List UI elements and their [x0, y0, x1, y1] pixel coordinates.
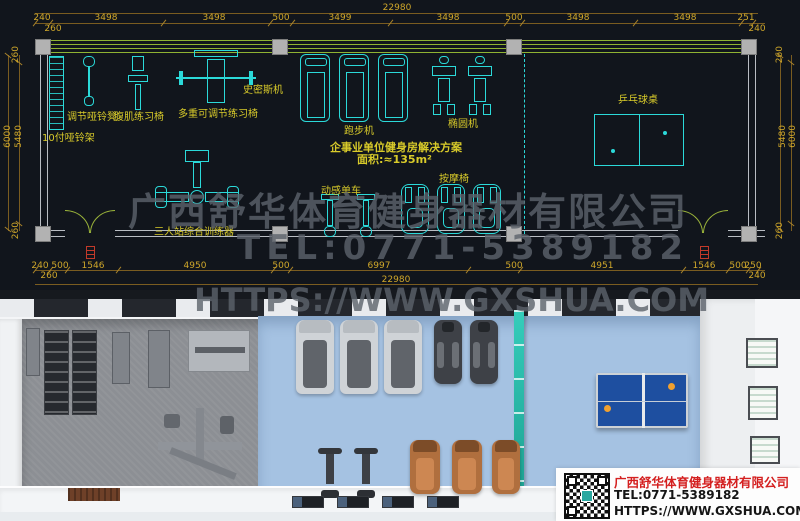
dim-bot-seg-0: 240 [31, 262, 48, 271]
solution-area: 面积:≈135m² [357, 151, 432, 167]
massage-chair-3d [492, 440, 520, 494]
treadmill-plan-icon [378, 54, 408, 122]
page: 22980 240 3498 3498 500 3499 3498 500 34… [0, 0, 800, 521]
wall-poster [748, 386, 778, 420]
label-dumbbell-rack: 10付哑铃架 [42, 133, 95, 144]
label-dumbbell-bench: 调节哑铃凳 [67, 112, 117, 123]
watermark-url: HTTPS://WWW.GXSHUA.COM [194, 281, 709, 319]
dumbbell-rack-3d [44, 330, 69, 415]
dim-top-seg-4: 3499 [329, 14, 352, 23]
dumbbell-rack-3d [72, 330, 97, 415]
treadmill-plan-icon [300, 54, 330, 122]
exit-symbol-icon [700, 246, 709, 259]
label-ab-bench: 腹肌练习椅 [114, 112, 164, 123]
dim-right-top: 260 [776, 46, 785, 63]
wall-poster [750, 436, 780, 464]
dim-top-seg-6: 500 [505, 14, 522, 23]
company-url: HTTPS://WWW.GXSHUA.COM [614, 504, 800, 518]
dim-top-seg-9: 251 [737, 14, 754, 23]
elliptical-3d [434, 320, 462, 384]
right-wall [748, 50, 756, 232]
dim-top-seg-7: 3498 [567, 14, 590, 23]
massage-chair-3d [410, 440, 440, 494]
render-view: 广西舒华体育健身器材有限公司 TEL:0771-5389182 HTTPS://… [0, 290, 800, 521]
ab-bench-3d [148, 330, 170, 388]
dim-bot-seg-2: 1546 [82, 262, 105, 271]
label-treadmill: 跑步机 [344, 126, 374, 137]
elliptical-3d [470, 320, 498, 384]
label-multi-bench: 多重可调节练习椅 [178, 109, 258, 120]
treadmill-plan-icon [339, 54, 369, 122]
column [35, 226, 51, 242]
elliptical-plan-icon [468, 56, 492, 116]
dim-bot-seg-3: 4950 [184, 262, 207, 271]
dim-right-inner: 5480 [779, 125, 788, 148]
treadmill-3d [384, 320, 422, 394]
dim-bot-right-inner: 240 [748, 272, 765, 281]
floor-mat [292, 496, 324, 508]
dim-bot-seg-10: 250 [744, 262, 761, 271]
treadmill-3d [296, 320, 334, 394]
column [35, 39, 51, 55]
dumbbell-bench-plan-icon [81, 56, 97, 106]
watermark-tel: TEL:0771-5389182 [237, 228, 689, 268]
dim-top-seg-0: 240 [33, 14, 50, 23]
spin-bike-3d [354, 448, 378, 498]
column [506, 39, 522, 55]
dim-top-seg-2: 3498 [203, 14, 226, 23]
dim-top-right-inner: 240 [748, 25, 765, 34]
spin-bike-3d [318, 448, 342, 498]
dim-right-bottom: 260 [776, 222, 785, 239]
pingpong-table-3d [596, 373, 688, 428]
pingpong-table-plan-icon [594, 114, 684, 166]
top-wall [35, 40, 757, 53]
wall-poster [746, 338, 778, 368]
left-wall-3d [0, 319, 22, 511]
dim-left-inner: 5480 [15, 125, 24, 148]
column [741, 226, 757, 242]
dim-top-seg-1: 3498 [95, 14, 118, 23]
dim-right-outer: 6000 [789, 125, 798, 148]
treadmill-3d [340, 320, 378, 394]
column [741, 39, 757, 55]
trainer-3d [158, 408, 242, 488]
dim-left-top: 260 [12, 46, 21, 63]
label-pingpong-table: 乒乓球桌 [618, 95, 658, 106]
dim-top-total: 22980 [383, 4, 412, 13]
floor-mat [427, 496, 459, 508]
elliptical-plan-icon [432, 56, 456, 116]
dim-bot-seg-1: 500 [51, 262, 68, 271]
qr-code-icon [564, 473, 610, 519]
floor-mat [337, 496, 369, 508]
dumbbell-rack-plan-icon [49, 56, 64, 130]
dim-bot-seg-8: 1546 [693, 262, 716, 271]
ab-bench-plan-icon [128, 56, 148, 110]
label-smith-machine: 史密斯机 [243, 85, 283, 96]
bench-3d [112, 332, 130, 384]
door-mat [68, 488, 120, 501]
dim-top-left-inner: 260 [44, 25, 61, 34]
wall-machine-3d [26, 328, 40, 376]
smith-machine-plan-icon [176, 50, 256, 106]
smith-machine-3d [188, 330, 250, 372]
dim-left-bottom: 260 [12, 222, 21, 239]
exit-symbol-icon [86, 246, 95, 259]
company-info-box: 广西舒华体育健身器材有限公司 TEL:0771-5389182 HTTPS://… [556, 468, 800, 521]
floor-mat [382, 496, 414, 508]
massage-chair-3d [452, 440, 482, 494]
dim-top-seg-8: 3498 [674, 14, 697, 23]
label-elliptical: 椭圆机 [448, 119, 478, 130]
dim-top-seg-3: 500 [272, 14, 289, 23]
dim-top-seg-5: 3498 [437, 14, 460, 23]
column [272, 39, 288, 55]
company-tel: TEL:0771-5389182 [614, 488, 740, 502]
dim-bot-left-inner: 260 [40, 272, 57, 281]
dim-left-outer: 6000 [4, 125, 13, 148]
